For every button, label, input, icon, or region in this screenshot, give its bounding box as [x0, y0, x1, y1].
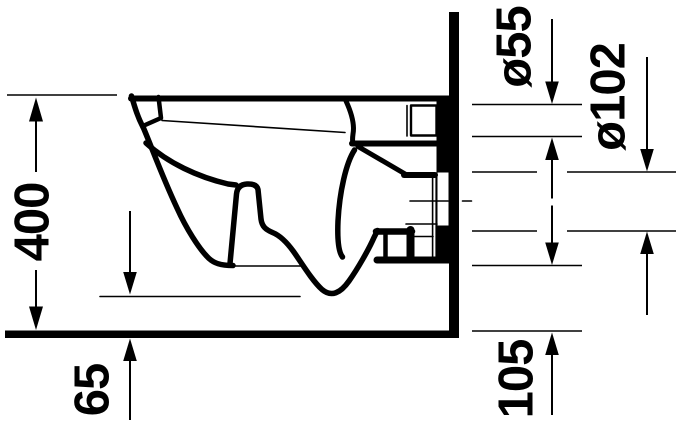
flush-connector-section [411, 106, 437, 136]
dim-102-arrow-down [640, 149, 654, 172]
wall-section-bar [449, 12, 459, 338]
dim-105-arrow-down [545, 243, 559, 266]
bowl-back-edge [346, 101, 353, 144]
dim-400-label: 400 [6, 183, 60, 262]
rim-inner-edge-line [162, 121, 345, 133]
dim-overall-height: 400 [6, 95, 117, 330]
dim-floor-clearance: 65 [66, 211, 137, 420]
dim-400-arrow-up [29, 98, 43, 122]
trap-weir-curve [338, 150, 355, 257]
dim-102-arrow-up [640, 232, 654, 255]
toilet-side-elevation-drawing: 400 65 ø55 ø102 105 [0, 0, 680, 430]
toilet-body [100, 96, 472, 297]
room-section [5, 12, 459, 338]
dim-65-label: 65 [66, 364, 120, 417]
dim-outlet-height: 105 [472, 206, 582, 419]
dim-102-label: ø102 [582, 43, 636, 151]
dim-105-label: 105 [490, 340, 544, 419]
floor-section-bar [5, 331, 459, 339]
dim-flush-connection: ø55 [472, 6, 582, 198]
trap-and-bottom-outline [230, 184, 378, 294]
dim-55-arrow-down [545, 82, 559, 105]
dim-55-arrow-up [545, 138, 559, 161]
dim-400-arrow-down [29, 307, 43, 331]
outlet-channel-opening [438, 173, 449, 226]
dim-105-arrow-up [545, 333, 559, 356]
drawing-canvas: 400 65 ø55 ø102 105 [0, 0, 680, 430]
outlet-channel-top-slant [358, 147, 406, 175]
dim-65-arrow-up [123, 339, 137, 362]
dim-65-arrow-down [123, 272, 137, 295]
dim-55-label: ø55 [488, 6, 542, 87]
